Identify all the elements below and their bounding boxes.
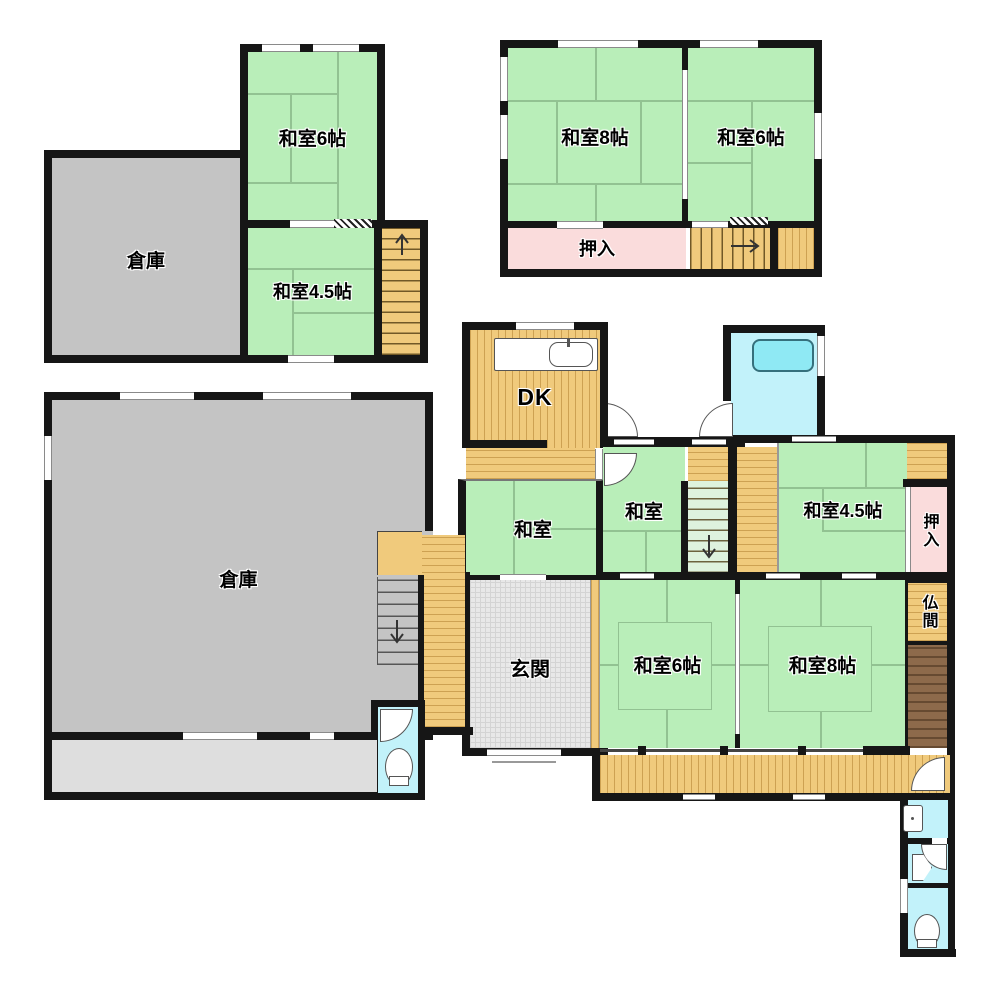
wall	[596, 481, 603, 573]
wall	[728, 437, 737, 581]
tatami-line	[508, 100, 682, 102]
stairwell-railing-hatch	[334, 219, 372, 228]
window	[900, 879, 908, 913]
tatami-line	[645, 530, 647, 573]
room-label: 倉庫	[52, 246, 240, 273]
window	[313, 44, 359, 52]
toilet-base	[917, 939, 937, 948]
veranda	[600, 755, 950, 793]
sliding-door	[620, 573, 654, 579]
door-opening	[310, 732, 334, 740]
room-butsuma: 仏間	[908, 583, 947, 641]
room-label: 和室6帖	[600, 651, 735, 678]
tatami-line	[248, 182, 337, 184]
room-label: DK	[470, 384, 600, 411]
wall	[371, 793, 425, 800]
room-souko-main: 倉庫	[44, 392, 433, 740]
room-dk: DK	[462, 322, 608, 448]
room-label: 玄関	[470, 653, 590, 682]
sliding-door	[692, 221, 728, 228]
kitchen-sink	[549, 342, 593, 367]
wall	[720, 746, 728, 755]
tatami-line	[595, 183, 597, 221]
room-washitsu8-lower: 和室8帖	[740, 580, 905, 748]
landing-2f	[778, 228, 814, 269]
room-souko-upper: 倉庫	[44, 150, 248, 363]
sliding-door	[842, 573, 876, 579]
tatami-line	[820, 712, 822, 748]
stair-landing	[688, 447, 728, 481]
stairwell-railing-hatch	[730, 217, 768, 225]
room-washitsu45-mid: 和室4.5帖	[779, 443, 907, 575]
sliding-door	[692, 439, 726, 445]
room-label: 和室6帖	[688, 123, 814, 150]
room-oshiire-mid: 押入	[910, 487, 947, 575]
room-label: 和室4.5帖	[248, 278, 377, 304]
entrance-door	[487, 749, 561, 756]
window	[817, 336, 825, 376]
sliding-door	[766, 573, 800, 579]
sliding-door	[614, 439, 654, 445]
faucet-icon	[567, 338, 570, 347]
room-washitsu45-upper: 和室4.5帖	[240, 220, 385, 363]
hallway	[466, 448, 595, 479]
window	[516, 322, 574, 330]
storage-annex	[52, 740, 377, 793]
room-label: 和室8帖	[508, 123, 682, 150]
room-washitsu-west: 和室	[458, 479, 608, 583]
tatami-line	[779, 487, 907, 489]
stairs-down-arrow	[701, 533, 717, 561]
wall	[681, 481, 688, 581]
room-washitsu6-2f: 和室6帖	[688, 48, 814, 221]
wall	[947, 435, 955, 957]
room-label: 和室6帖	[248, 124, 377, 151]
tatami-line	[292, 312, 377, 314]
bathroom	[723, 325, 825, 443]
room-label: 和室	[466, 515, 600, 542]
room-oshiire-2f: 押入	[508, 228, 686, 269]
floor-plan: 和室6帖 和室4.5帖 倉庫 和室8帖 和室6帖	[0, 0, 1000, 996]
wall	[44, 792, 377, 800]
room-washitsu6-upper: 和室6帖	[240, 44, 385, 228]
window	[120, 392, 194, 400]
tatami-line	[688, 162, 751, 164]
washbasin-drain	[911, 817, 914, 820]
tatami-line	[595, 48, 597, 100]
hall-strip	[590, 580, 600, 748]
tatami-line	[248, 93, 337, 95]
stairs-down-arrow	[389, 618, 405, 646]
wall	[418, 700, 425, 800]
stairs-up-arrow	[393, 231, 411, 257]
sliding-door	[905, 487, 911, 575]
entrance-step	[492, 761, 556, 763]
window	[700, 40, 758, 48]
window	[288, 355, 334, 363]
room-genkan: 玄関	[470, 580, 590, 748]
wall	[900, 949, 956, 957]
room-washitsu6-lower: 和室6帖	[600, 580, 735, 748]
tatami-line	[820, 580, 822, 626]
stairs-right-arrow	[728, 238, 762, 254]
window	[500, 57, 508, 101]
corridor-upper-right	[907, 443, 947, 479]
window	[262, 44, 300, 52]
wall	[508, 221, 814, 228]
window	[793, 794, 825, 800]
wall	[798, 746, 806, 755]
window	[814, 113, 822, 159]
door-opening	[183, 732, 257, 740]
tatami-line	[751, 100, 753, 221]
room-label: 和室8帖	[740, 651, 905, 678]
room-label: 押入	[508, 235, 686, 261]
corridor-west	[422, 535, 465, 727]
room-washitsu8-2f: 和室8帖	[508, 48, 682, 221]
second-floor-block: 和室8帖 和室6帖 押入	[500, 40, 822, 277]
stair-storage-brown	[908, 645, 947, 748]
room-label: 和室	[603, 497, 685, 524]
tatami-line	[822, 530, 907, 532]
room-label: 和室4.5帖	[779, 497, 907, 523]
door-arc	[699, 403, 733, 437]
tatami-line	[865, 443, 867, 487]
wall	[638, 746, 646, 755]
window	[44, 436, 52, 480]
tatami-line	[603, 530, 685, 532]
wall	[462, 440, 547, 448]
sliding-door	[792, 436, 836, 442]
window	[263, 392, 351, 400]
window	[500, 115, 508, 159]
wall	[371, 700, 425, 707]
door-arc	[604, 403, 638, 437]
sliding-door	[290, 220, 334, 228]
tatami-line	[666, 580, 668, 622]
bathtub	[752, 339, 814, 372]
stair-landing-west	[377, 531, 422, 575]
toilet-base	[389, 776, 409, 786]
wall	[44, 740, 52, 800]
window	[558, 40, 638, 48]
wall	[418, 575, 424, 702]
window	[683, 794, 715, 800]
engawa-corridor	[737, 447, 777, 573]
room-label: 倉庫	[52, 565, 425, 592]
sliding-door	[557, 221, 603, 229]
wall	[425, 392, 433, 531]
tatami-line	[666, 710, 668, 748]
tatami-line	[248, 268, 377, 270]
wall	[417, 727, 473, 735]
wall	[770, 221, 778, 269]
